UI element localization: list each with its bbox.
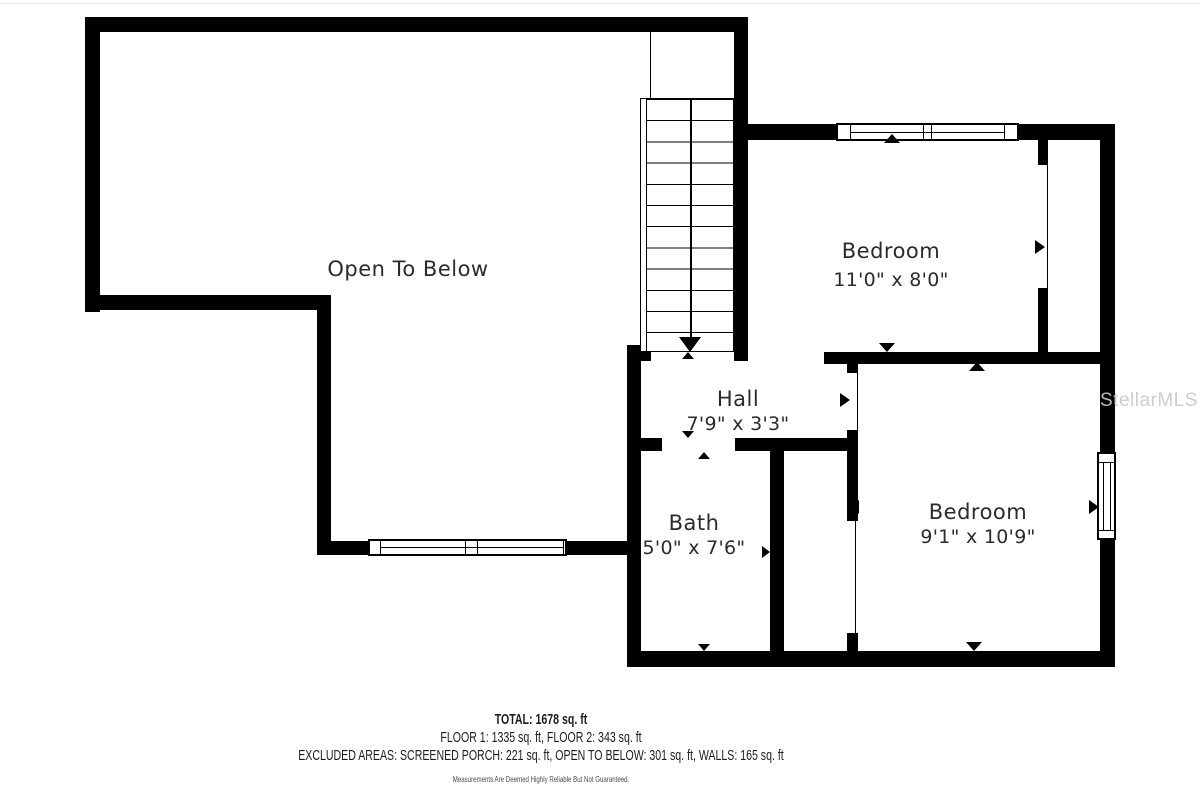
excluded-areas-text: EXCLUDED AREAS: SCREENED PORCH: 221 sq. … [146,747,936,765]
top-border-line [0,3,1200,4]
stair-direction-line [690,98,692,338]
wall-bedroom-top-left-segment [748,124,836,140]
bedroom-bottom-arrow-right-icon [1089,500,1099,514]
room-label-open-to-below: Open To Below [308,257,508,281]
wall-bedroom-top-right-segment [1019,124,1115,140]
stairs-down-arrow-icon [679,337,701,352]
room-name: Bath [614,511,774,535]
bedroom-bottom-arrow-up-icon [969,362,985,371]
wall-closet-lower [1038,288,1048,352]
wall-openbelow-south-left [317,541,368,555]
door-edge-bedroom-alcove [855,521,856,633]
window-bedroom-top [836,123,1019,141]
wall-left-outer [85,17,100,312]
wall-bath-top-left [627,438,662,451]
wall-closet-upper [1038,140,1048,165]
room-name: Hall [658,387,818,411]
room-name: Bedroom [878,500,1078,524]
door-edge-closet [1047,165,1048,288]
window-bedroom-bottom [1097,452,1116,540]
room-label-hall: Hall 7'9" x 3'3" [658,387,818,435]
wall-bedroom-top-bottom [824,352,1100,364]
room-dimensions: 11'0" x 8'0" [791,269,991,291]
room-label-bath: Bath 5'0" x 7'6" [614,511,774,559]
staircase [640,98,734,352]
wall-bottom-outer [627,651,1115,667]
bedroom-top-arrow-down-icon [879,343,895,352]
wall-openbelow-mid-vertical [317,295,331,555]
room-label-bedroom-bottom: Bedroom 9'1" x 10'9" [878,500,1078,548]
room-name: Bedroom [791,239,991,263]
stair-landing-line [650,32,651,98]
room-label-bedroom-top: Bedroom 11'0" x 8'0" [791,239,991,291]
bath-arrow-down-icon [698,644,710,651]
bedroom-bottom-arrow-left-icon [849,500,859,514]
bedroom-top-arrow-left-icon [735,240,745,254]
door-edge-hall-bedroom [857,372,858,430]
stellar-mls-watermark: StellarMLS [1100,390,1198,412]
floor-areas-text: FLOOR 1: 1335 sq. ft, FLOOR 2: 343 sq. f… [146,729,936,747]
bedroom-top-arrow-right-icon [1035,240,1045,254]
hall-arrow-up-icon [682,352,694,359]
hall-arrow-left-icon [631,393,641,407]
room-dimensions: 7'9" x 3'3" [658,413,818,435]
bedroom-bottom-arrow-down-icon [966,642,982,651]
wall-openbelow-bottom-left [85,295,331,310]
total-area-text: TOTAL: 1678 sq. ft [146,711,936,729]
bath-arrow-up-icon [698,452,710,459]
room-name: Open To Below [308,257,508,281]
room-dimensions: 5'0" x 7'6" [614,537,774,559]
wall-stairs-right [734,17,748,361]
room-dimensions: 9'1" x 10'9" [878,526,1078,548]
bedroom-top-arrow-up-icon [884,134,900,143]
floor-plan-canvas: Open To Below Bedroom 11'0" x 8'0" Hall … [0,0,1200,800]
area-summary-footer: TOTAL: 1678 sq. ft FLOOR 1: 1335 sq. ft,… [0,711,1082,784]
wall-top-outer [85,17,748,32]
hall-arrow-right-icon [840,393,850,407]
window-open-below [368,539,567,556]
disclaimer-text: Measurements Are Deemed Highly Reliable … [151,774,930,784]
wall-bedroom-bottom-left-stub [847,633,858,651]
wall-bath-top-right [735,438,858,451]
